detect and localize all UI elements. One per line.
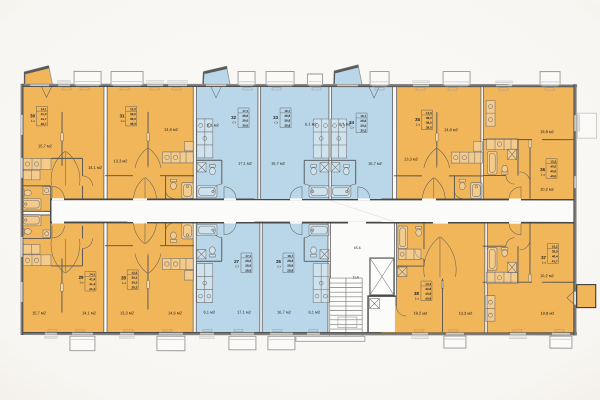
svg-text:13,3 м2: 13,3 м2 (114, 158, 129, 163)
svg-text:10,2 м2: 10,2 м2 (540, 273, 555, 278)
svg-text:39,0: 39,0 (426, 126, 432, 130)
svg-text:28,8: 28,8 (284, 119, 290, 123)
svg-text:37: 37 (541, 255, 546, 260)
svg-text:39,0: 39,0 (426, 121, 432, 125)
svg-text:1-к: 1-к (122, 281, 127, 285)
svg-text:1-к: 1-к (542, 261, 547, 265)
svg-text:14,6 м2: 14,6 м2 (168, 310, 183, 315)
svg-text:28,6: 28,6 (245, 269, 251, 273)
svg-text:30,2: 30,2 (360, 129, 366, 133)
svg-text:28,6: 28,6 (245, 259, 251, 263)
svg-text:1-к: 1-к (79, 280, 84, 284)
svg-text:28: 28 (121, 275, 126, 280)
svg-text:14,1: 14,1 (41, 107, 47, 111)
svg-text:Ст: Ст (232, 121, 236, 125)
svg-text:29,2: 29,2 (360, 124, 366, 128)
svg-text:Ст: Ст (277, 265, 281, 269)
svg-text:16,7: 16,7 (287, 254, 293, 258)
svg-text:15,7 м2: 15,7 м2 (38, 143, 53, 148)
svg-text:40,4: 40,4 (552, 254, 558, 258)
svg-text:Ст: Ст (274, 121, 278, 125)
svg-text:16,7: 16,7 (284, 109, 290, 113)
svg-text:15,7 м2: 15,7 м2 (32, 310, 47, 315)
svg-text:40,8: 40,8 (425, 297, 431, 301)
svg-text:6,1 м2: 6,1 м2 (203, 309, 215, 314)
svg-text:40,0: 40,0 (550, 174, 556, 178)
svg-text:13,3 м2: 13,3 м2 (120, 310, 135, 315)
svg-text:41,7: 41,7 (552, 259, 558, 263)
svg-text:42,7: 42,7 (41, 122, 47, 126)
svg-text:13,3 м2: 13,3 м2 (404, 157, 419, 162)
svg-text:28,8: 28,8 (287, 269, 293, 273)
svg-text:65,6: 65,6 (354, 246, 361, 250)
svg-text:14,1 м2: 14,1 м2 (88, 165, 103, 170)
svg-text:14,6 м2: 14,6 м2 (164, 127, 179, 132)
svg-text:13,3 м2: 13,3 м2 (458, 311, 473, 316)
svg-text:13,3: 13,3 (132, 271, 138, 275)
svg-text:17,1 м2: 17,1 м2 (238, 161, 253, 166)
svg-text:19,8 м2: 19,8 м2 (540, 129, 555, 134)
svg-text:40,0: 40,0 (550, 169, 556, 173)
svg-text:1-к: 1-к (120, 119, 125, 123)
svg-text:39,0: 39,0 (130, 122, 136, 126)
svg-text:30: 30 (30, 113, 35, 118)
svg-text:19,8 м2: 19,8 м2 (540, 311, 555, 316)
svg-text:14,1: 14,1 (89, 272, 95, 276)
svg-text:40,8: 40,8 (425, 287, 431, 291)
svg-text:14,1 м2: 14,1 м2 (82, 310, 97, 315)
svg-text:6,1 м2: 6,1 м2 (305, 122, 317, 127)
svg-text:13,3: 13,3 (130, 107, 136, 111)
svg-text:17,1: 17,1 (242, 109, 248, 113)
svg-text:28,6: 28,6 (242, 114, 248, 118)
svg-text:30,0: 30,0 (242, 124, 248, 128)
svg-text:39,0: 39,0 (130, 112, 136, 116)
svg-text:Ст: Ст (350, 126, 354, 130)
svg-text:13,3: 13,3 (426, 111, 432, 115)
svg-text:27: 27 (234, 259, 239, 264)
svg-text:Ст: Ст (235, 265, 239, 269)
svg-text:1-к: 1-к (415, 297, 420, 301)
svg-text:38: 38 (414, 291, 419, 296)
svg-text:28,8: 28,8 (284, 124, 290, 128)
svg-text:40,0: 40,0 (550, 165, 556, 169)
svg-text:31: 31 (120, 113, 125, 118)
svg-text:11,8: 11,8 (352, 276, 358, 280)
svg-text:10,2: 10,2 (550, 160, 556, 164)
svg-text:39,9: 39,9 (552, 250, 558, 254)
svg-text:29,0: 29,0 (242, 119, 248, 123)
svg-text:28,8: 28,8 (287, 264, 293, 268)
svg-text:10,2 м2: 10,2 м2 (540, 187, 555, 192)
svg-text:41,4: 41,4 (89, 287, 95, 291)
svg-text:26: 26 (276, 259, 281, 264)
svg-text:17,1 м2: 17,1 м2 (237, 309, 252, 314)
svg-text:33: 33 (273, 115, 278, 120)
svg-text:17,1: 17,1 (245, 254, 251, 258)
svg-text:28,6: 28,6 (245, 264, 251, 268)
svg-text:39,3: 39,3 (132, 286, 138, 290)
svg-text:41,7: 41,7 (41, 117, 47, 121)
svg-text:1-к: 1-к (31, 119, 36, 123)
svg-text:35: 35 (415, 117, 420, 122)
svg-text:41,4: 41,4 (89, 282, 95, 286)
svg-text:6,1 м2: 6,1 м2 (308, 310, 320, 315)
svg-text:10,2: 10,2 (552, 245, 558, 249)
svg-text:36: 36 (540, 167, 545, 172)
svg-text:1-к: 1-к (416, 123, 421, 127)
svg-text:6,1 м2: 6,1 м2 (207, 122, 219, 127)
svg-text:16,7 м2: 16,7 м2 (368, 161, 383, 166)
svg-text:13,3: 13,3 (425, 282, 431, 286)
svg-text:29: 29 (79, 275, 84, 280)
svg-text:40,8: 40,8 (425, 292, 431, 296)
svg-text:39,0: 39,0 (130, 117, 136, 121)
svg-text:28,8: 28,8 (360, 119, 366, 123)
svg-text:41,3: 41,3 (41, 112, 47, 116)
svg-text:16,7: 16,7 (360, 114, 366, 118)
svg-text:39,3: 39,3 (132, 281, 138, 285)
svg-text:39,0: 39,0 (426, 116, 432, 120)
svg-text:16,7 м2: 16,7 м2 (271, 161, 286, 166)
svg-text:41,4: 41,4 (89, 277, 95, 281)
svg-text:28,8: 28,8 (287, 259, 293, 263)
svg-text:6,1 м2: 6,1 м2 (339, 122, 351, 127)
svg-text:14,6 м2: 14,6 м2 (444, 127, 459, 132)
svg-text:39,3: 39,3 (132, 276, 138, 280)
svg-text:16,7 м2: 16,7 м2 (277, 309, 292, 314)
svg-text:1-к: 1-к (541, 173, 546, 177)
svg-text:28,8: 28,8 (284, 114, 290, 118)
svg-text:19,2 м2: 19,2 м2 (413, 311, 428, 316)
svg-text:32: 32 (231, 115, 236, 120)
